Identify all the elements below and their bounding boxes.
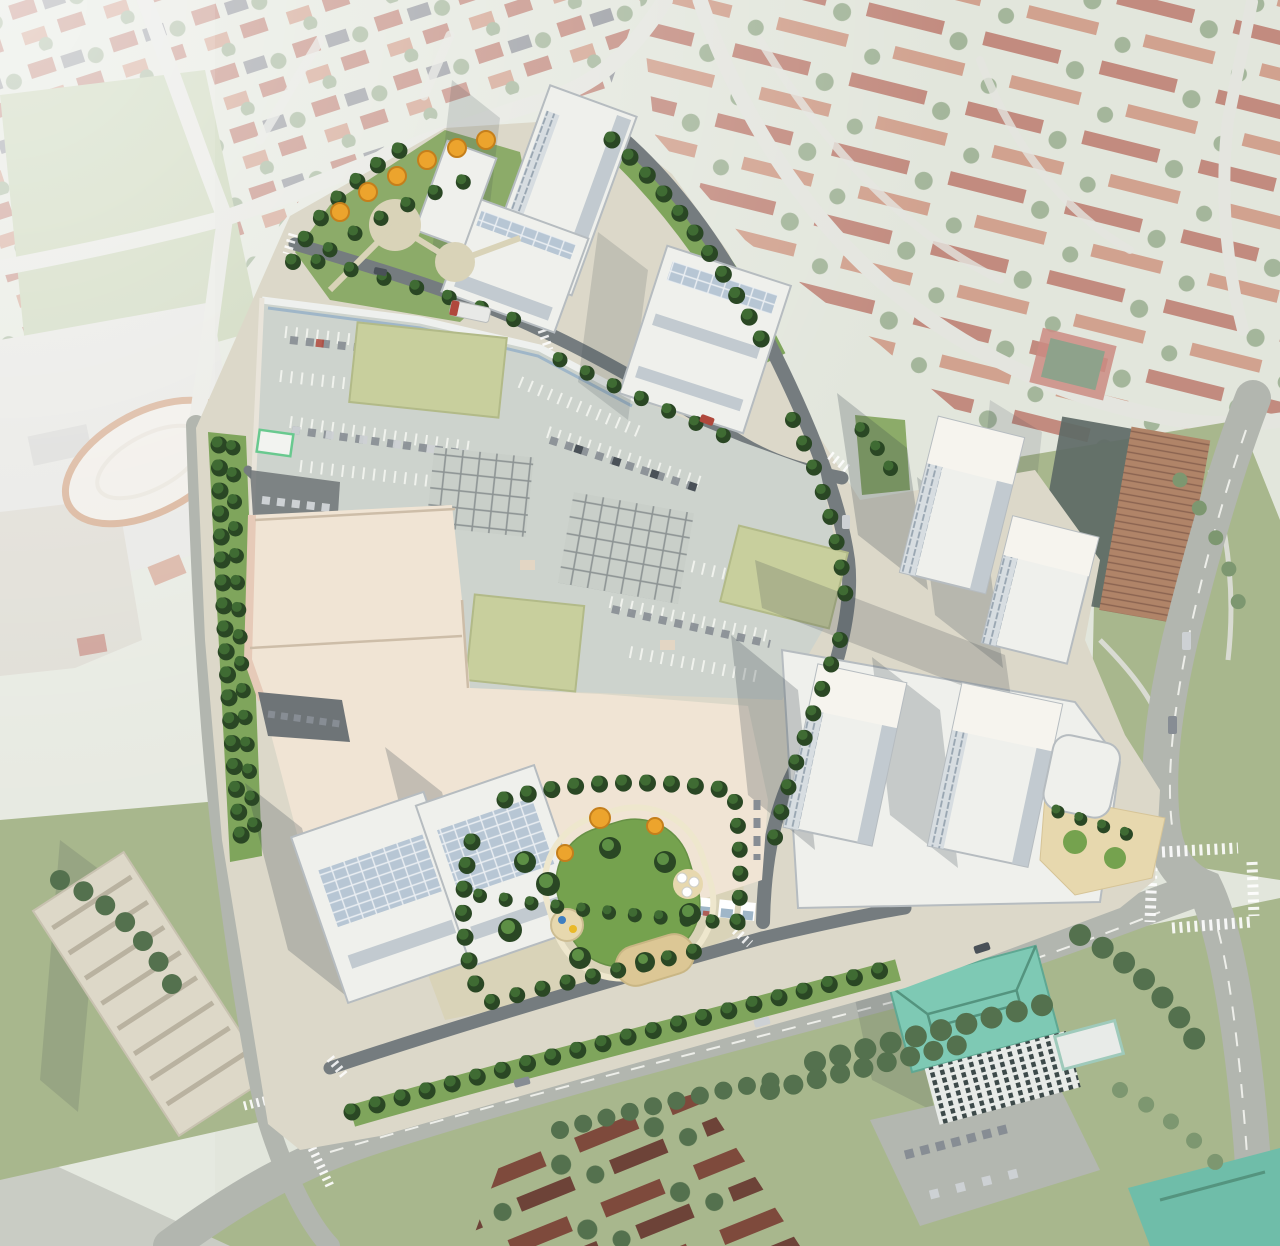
car xyxy=(842,515,850,529)
aerial-rendering-canvas xyxy=(0,0,1280,1246)
plaza-lawn xyxy=(1104,847,1126,869)
green-roof xyxy=(466,594,584,691)
mall-entrance-canopy xyxy=(257,430,294,457)
green-roof xyxy=(349,322,507,417)
car xyxy=(1182,632,1191,650)
play-structure-blue xyxy=(558,916,566,924)
car xyxy=(1168,716,1177,734)
aerial-rendering xyxy=(0,0,1280,1246)
rooftop-unit xyxy=(520,560,535,570)
rooftop-unit xyxy=(660,640,675,650)
plaza-lawn xyxy=(1063,830,1087,854)
play-structure-yellow xyxy=(569,925,577,933)
